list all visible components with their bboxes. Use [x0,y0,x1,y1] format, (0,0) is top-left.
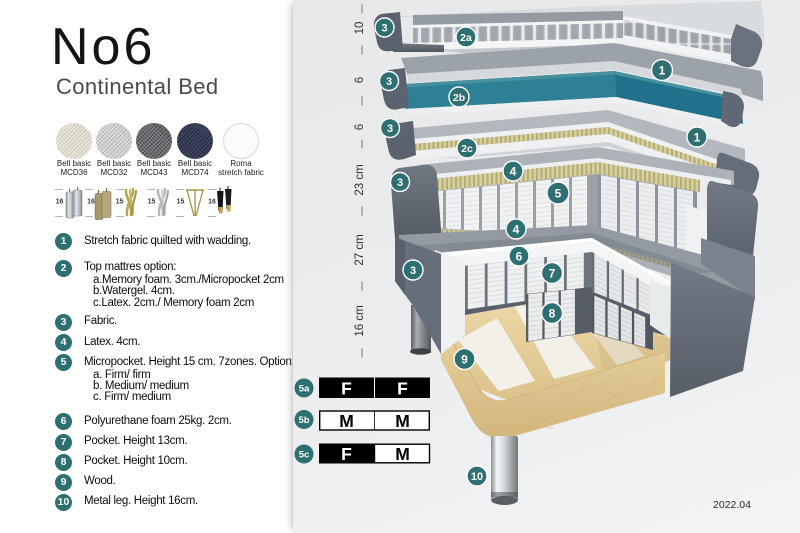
svg-text:16: 16 [56,199,64,206]
svg-text:6: 6 [354,124,366,130]
svg-text:15: 15 [148,199,156,206]
svg-text:9: 9 [461,352,468,366]
svg-text:2c: 2c [461,143,473,155]
svg-text:3: 3 [381,23,387,35]
svg-text:M: M [339,411,354,431]
svg-text:3: 3 [397,177,403,189]
svg-text:1: 1 [694,130,701,144]
svg-text:M: M [395,444,410,464]
svg-text:15: 15 [177,199,185,206]
svg-text:5c: 5c [299,450,310,461]
svg-text:F: F [341,379,352,399]
svg-text:F: F [397,379,408,399]
svg-text:7: 7 [549,266,556,280]
svg-text:5a: 5a [299,384,310,395]
svg-text:10: 10 [471,471,483,483]
svg-text:2a: 2a [460,32,472,44]
svg-text:M: M [395,411,410,431]
svg-text:16 cm: 16 cm [354,305,366,336]
svg-text:F: F [341,444,352,464]
svg-text:5: 5 [555,186,562,200]
svg-text:6: 6 [354,77,366,83]
svg-text:6: 6 [516,249,523,263]
svg-text:5b: 5b [298,415,309,426]
svg-text:8: 8 [549,306,556,320]
svg-text:23 cm: 23 cm [354,164,366,195]
svg-text:15: 15 [116,199,124,206]
svg-text:3: 3 [386,76,392,88]
svg-text:16: 16 [87,199,95,206]
svg-text:3: 3 [410,265,416,277]
svg-text:10: 10 [354,22,366,35]
svg-text:27 cm: 27 cm [354,234,366,265]
svg-text:2022.04: 2022.04 [713,499,751,511]
svg-text:4: 4 [513,222,520,236]
svg-text:1: 1 [659,63,666,77]
svg-text:3: 3 [387,123,393,135]
svg-text:2b: 2b [453,92,465,104]
svg-text:16: 16 [208,199,216,206]
svg-text:4: 4 [510,164,517,178]
